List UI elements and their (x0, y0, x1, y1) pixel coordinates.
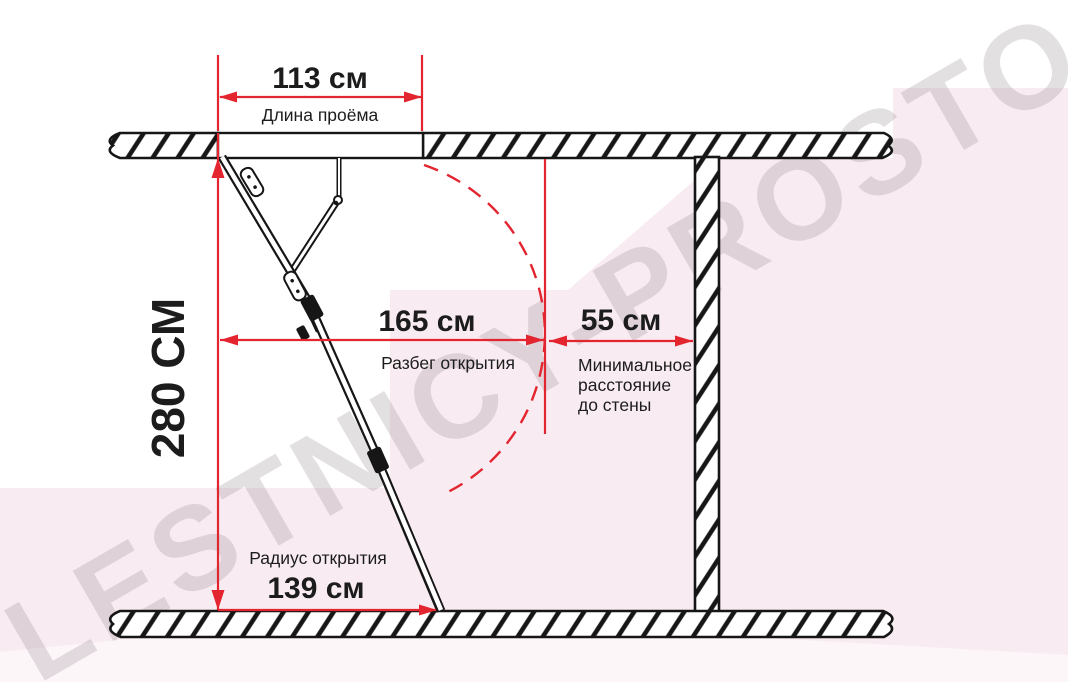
dim-opening-length-value: 113 см (272, 62, 368, 95)
ladder-section-bottom (376, 456, 441, 611)
dim-wall-clearance-label-line1: Минимальное (578, 355, 692, 375)
attic-ladder-dimension-diagram: LESTNICY-PROSTO.RU (0, 0, 1068, 682)
dim-ceiling-height-line (212, 133, 225, 610)
dim-ceiling-height-value: 280 СМ (142, 298, 194, 458)
dim-opening-run-label: Разбег открытия (381, 353, 515, 373)
diagram-canvas: 113 см Длина проёма 280 СМ 165 см Разбег… (0, 0, 1068, 682)
dim-wall-clearance-label-line2: расстояние (578, 375, 671, 395)
ceiling-left (110, 133, 218, 158)
wall (695, 157, 719, 612)
dim-wall-clearance-line (549, 336, 693, 347)
dim-opening-run-value: 165 см (378, 305, 475, 338)
dim-wall-clearance-label-line3: до стены (578, 395, 651, 415)
ceiling-right (423, 133, 892, 158)
ladder-section-middle (309, 303, 380, 463)
dim-opening-length-label: Длина проёма (262, 105, 379, 125)
floor (110, 611, 892, 637)
dim-wall-clearance-value: 55 см (581, 304, 662, 337)
hatch-rod (334, 158, 342, 204)
dim-opening-radius-value: 139 см (267, 572, 364, 605)
ladder-clamp-small (296, 325, 311, 342)
dim-opening-radius-label: Радиус открытия (249, 548, 387, 568)
opening-frame (218, 133, 423, 158)
